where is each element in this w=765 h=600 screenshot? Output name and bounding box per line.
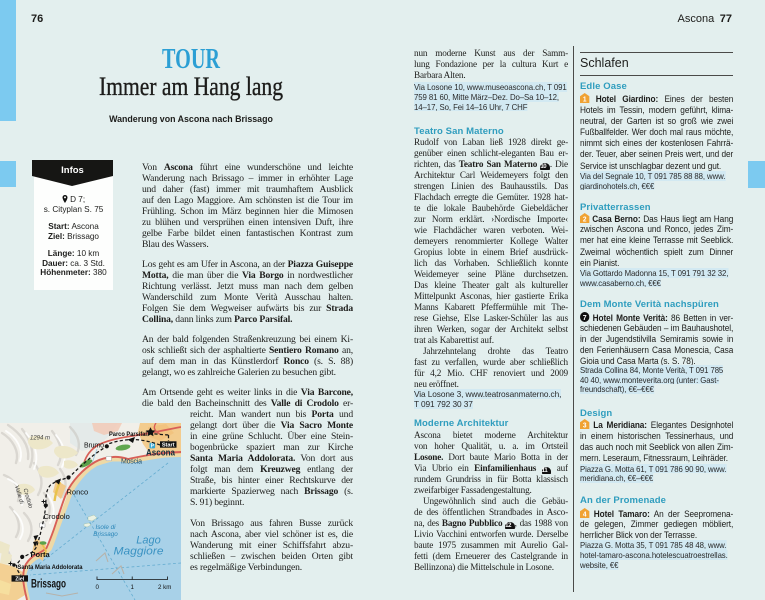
svg-text:Parco Parsifal: Parco Parsifal xyxy=(109,431,147,438)
svg-text:Crodolo: Crodolo xyxy=(44,512,70,521)
svg-text:Maggiore: Maggiore xyxy=(114,546,164,558)
svg-text:Brumo: Brumo xyxy=(84,442,104,449)
svg-text:Brissago: Brissago xyxy=(93,531,118,538)
svg-text:Ronco: Ronco xyxy=(67,487,89,496)
svg-text:Ziel: Ziel xyxy=(15,577,24,583)
svg-text:Infos: Infos xyxy=(61,165,84,176)
svg-text:1294 m: 1294 m xyxy=(30,436,50,442)
svg-text:7: 7 xyxy=(583,312,587,321)
svg-text:2 km: 2 km xyxy=(158,584,171,591)
svg-text:4: 4 xyxy=(583,511,587,518)
svg-text:Brissago: Brissago xyxy=(31,579,66,591)
svg-text:3: 3 xyxy=(583,423,587,430)
svg-text:Ascona: Ascona xyxy=(146,448,176,459)
svg-text:1: 1 xyxy=(583,97,587,104)
svg-text:Moscia: Moscia xyxy=(121,459,142,466)
svg-text:Santa Maria Addolorata: Santa Maria Addolorata xyxy=(18,564,83,571)
svg-text:0: 0 xyxy=(96,584,100,591)
svg-text:2: 2 xyxy=(583,217,587,224)
svg-text:Porta: Porta xyxy=(31,550,51,559)
svg-text:1: 1 xyxy=(131,584,135,591)
